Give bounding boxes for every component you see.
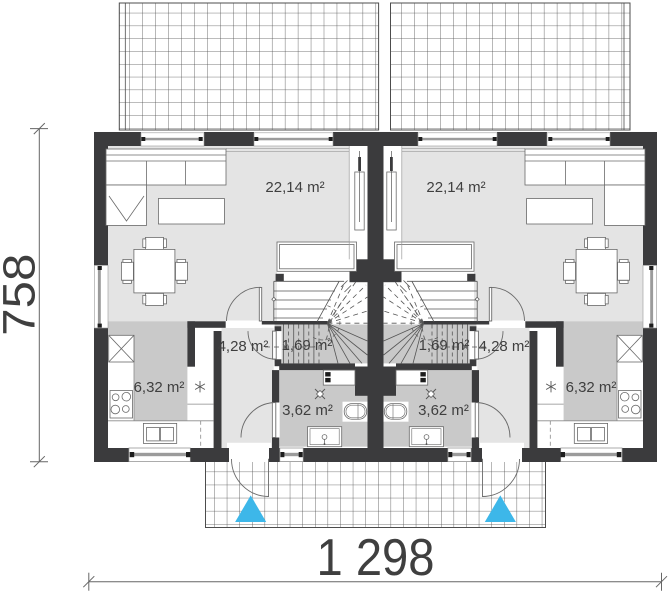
svg-text:1,69 m²: 1,69 m² xyxy=(419,337,470,354)
svg-text:3,62 m²: 3,62 m² xyxy=(418,402,469,419)
svg-text:6,32 m²: 6,32 m² xyxy=(566,379,617,396)
svg-text:22,14 m²: 22,14 m² xyxy=(265,179,324,196)
svg-text:758: 758 xyxy=(0,254,45,336)
svg-text:1,69 m²: 1,69 m² xyxy=(282,337,333,354)
svg-text:3,62 m²: 3,62 m² xyxy=(282,402,333,419)
svg-text:4,28 m²: 4,28 m² xyxy=(479,338,530,355)
svg-text:6,32 m²: 6,32 m² xyxy=(134,379,185,396)
svg-text:4,28 m²: 4,28 m² xyxy=(218,338,269,355)
svg-text:1 298: 1 298 xyxy=(317,529,435,587)
svg-text:22,14 m²: 22,14 m² xyxy=(426,179,485,196)
